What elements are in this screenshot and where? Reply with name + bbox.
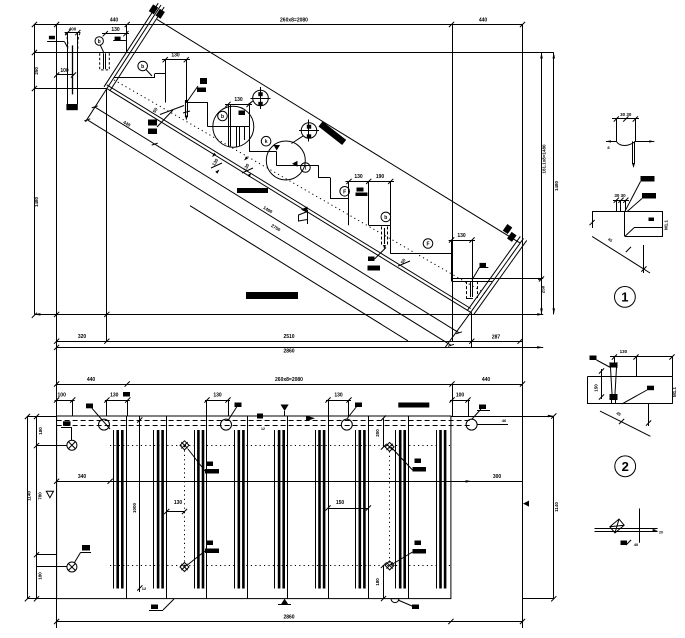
svg-text:2860: 2860	[283, 615, 294, 621]
svg-text:130: 130	[174, 500, 183, 506]
svg-text:2510: 2510	[283, 334, 294, 340]
svg-text:161.1x8=1480: 161.1x8=1480	[542, 144, 547, 173]
svg-text:2860: 2860	[283, 349, 294, 355]
svg-text:180: 180	[38, 572, 43, 580]
svg-text:M1.1: M1.1	[664, 220, 669, 231]
svg-text:340: 340	[78, 474, 87, 480]
svg-text:250: 250	[34, 67, 39, 75]
svg-text:440: 440	[479, 18, 488, 24]
svg-text:440: 440	[110, 18, 119, 24]
svg-text:130: 130	[457, 233, 466, 239]
svg-text:40: 40	[634, 542, 639, 547]
svg-text:180: 180	[38, 427, 43, 435]
svg-text:780: 780	[38, 492, 43, 500]
svg-text:1140: 1140	[27, 491, 32, 501]
svg-text:440: 440	[482, 377, 491, 383]
svg-text:F: F	[343, 189, 346, 195]
svg-text:100: 100	[456, 393, 465, 399]
svg-text:440: 440	[87, 377, 96, 383]
svg-text:130: 130	[171, 53, 180, 59]
svg-text:b: b	[384, 215, 387, 221]
svg-text:300: 300	[493, 474, 502, 480]
svg-text:2: 2	[622, 459, 629, 474]
svg-text:1: 1	[621, 290, 628, 305]
svg-text:130: 130	[110, 393, 119, 399]
svg-text:130: 130	[354, 174, 363, 180]
svg-text:150: 150	[594, 384, 599, 392]
svg-text:130: 130	[620, 349, 628, 354]
svg-text:130: 130	[234, 97, 243, 103]
svg-text:b: b	[141, 64, 144, 70]
svg-text:1480: 1480	[554, 180, 559, 191]
svg-text:130: 130	[111, 27, 120, 33]
svg-text:287: 287	[492, 335, 501, 341]
svg-text:250: 250	[541, 285, 546, 293]
svg-text:46: 46	[502, 418, 507, 423]
svg-text:190: 190	[376, 174, 385, 180]
svg-text:260x8=2080: 260x8=2080	[275, 377, 303, 383]
svg-text:200: 200	[375, 429, 380, 437]
svg-text:20: 20	[659, 531, 663, 535]
svg-text:260x8=2080: 260x8=2080	[280, 18, 308, 24]
svg-text:k: k	[265, 139, 268, 145]
svg-text:30 30: 30 30	[614, 193, 626, 198]
svg-text:130: 130	[213, 393, 222, 399]
svg-text:150: 150	[336, 500, 345, 506]
svg-text:100: 100	[58, 393, 67, 399]
svg-text:180: 180	[375, 578, 380, 586]
svg-text:M1.1: M1.1	[672, 387, 677, 398]
svg-text:400: 400	[69, 27, 77, 32]
svg-text:12: 12	[142, 586, 147, 591]
svg-text:1000: 1000	[132, 502, 137, 513]
svg-text:b: b	[221, 114, 224, 120]
svg-text:F: F	[426, 242, 429, 248]
svg-text:100: 100	[60, 68, 69, 74]
svg-text:320: 320	[78, 334, 87, 340]
svg-text:b: b	[98, 39, 101, 45]
svg-text:130: 130	[334, 393, 343, 399]
svg-text:30 30: 30 30	[620, 112, 632, 117]
svg-text:12: 12	[261, 427, 265, 431]
svg-text:1140: 1140	[554, 502, 559, 512]
svg-text:1480: 1480	[34, 196, 39, 207]
